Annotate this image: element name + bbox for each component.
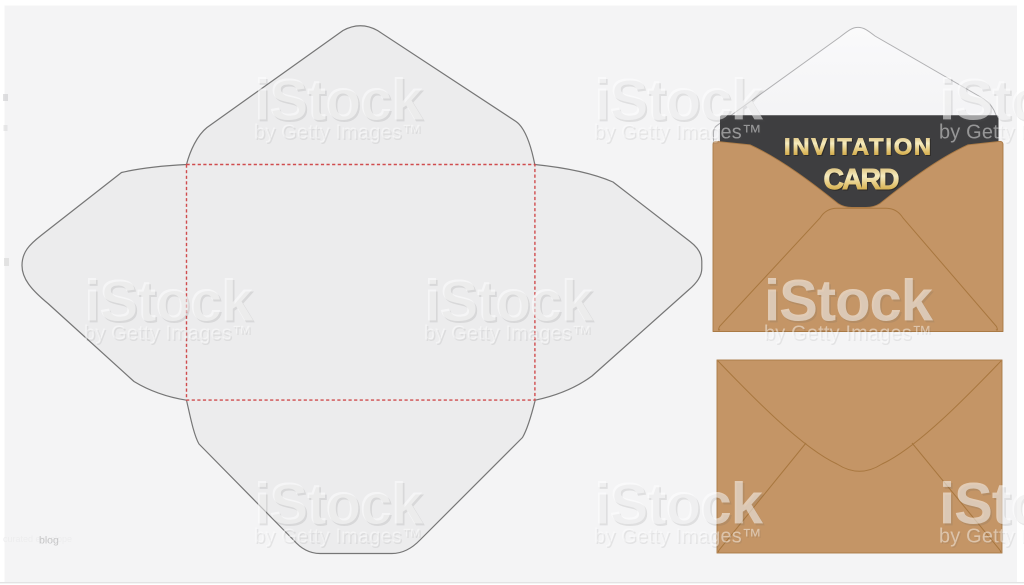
svg-text:CARD: CARD: [824, 164, 901, 196]
svg-text:blog: blog: [39, 535, 59, 547]
svg-text:curated envelope: curated envelope: [3, 534, 72, 544]
svg-text:INVITATION: INVITATION: [784, 134, 932, 160]
